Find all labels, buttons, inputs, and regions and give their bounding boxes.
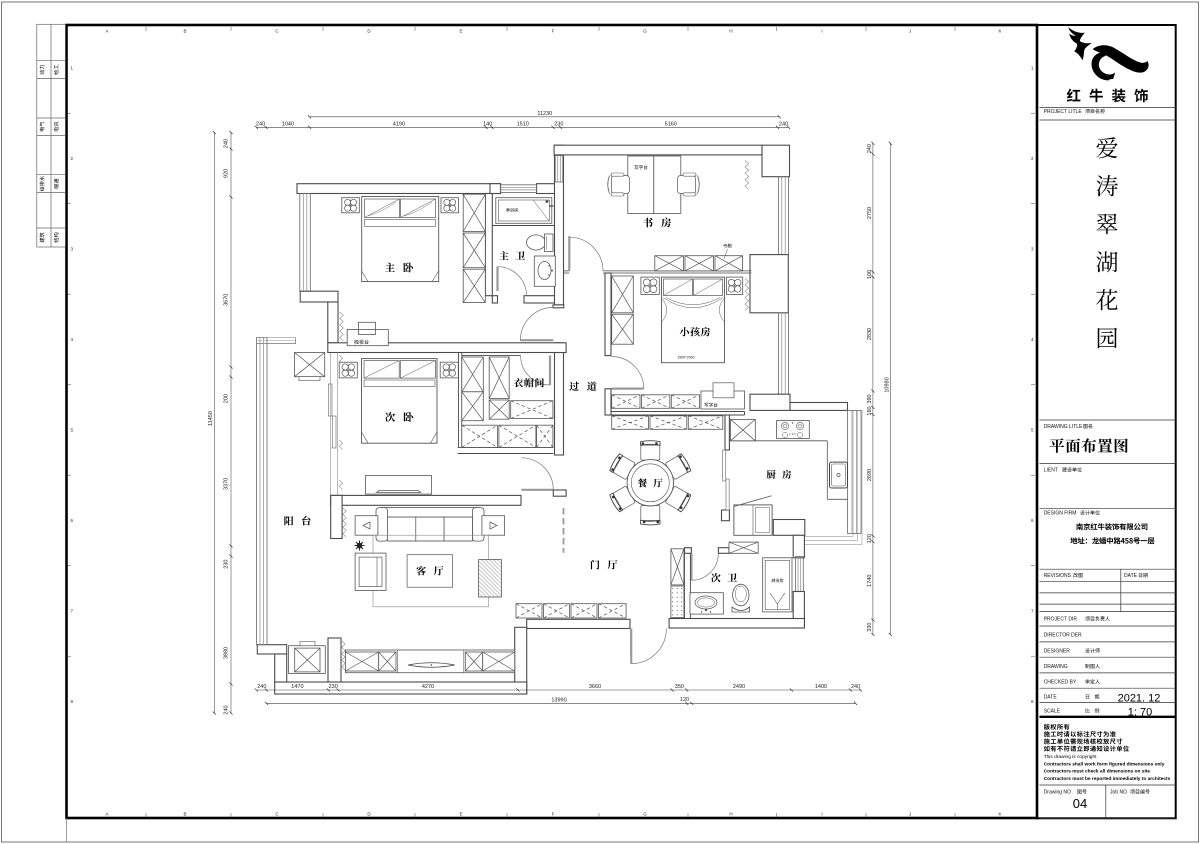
- svg-text:J: J: [909, 29, 911, 34]
- svg-text:5160: 5160: [665, 122, 677, 128]
- svg-text:K: K: [998, 812, 1001, 817]
- svg-text:B: B: [183, 29, 186, 34]
- svg-text:DIRECTOR DER: DIRECTOR DER: [1044, 633, 1082, 639]
- svg-text:I: I: [821, 29, 822, 34]
- svg-text:H: H: [729, 29, 732, 34]
- svg-text:120: 120: [680, 697, 689, 703]
- svg-text:Contractors must be reported i: Contractors must be reported immediately…: [1044, 776, 1171, 782]
- svg-text:E: E: [459, 812, 462, 817]
- svg-text:920: 920: [224, 169, 230, 178]
- svg-text:1510: 1510: [517, 122, 529, 128]
- svg-text:F: F: [552, 29, 555, 34]
- svg-text:DESIGNER: DESIGNER: [1044, 649, 1071, 655]
- svg-text:1740: 1740: [867, 575, 873, 587]
- svg-text:120: 120: [867, 534, 873, 543]
- svg-text:A: A: [105, 29, 108, 34]
- svg-text:330: 330: [867, 623, 873, 632]
- svg-text:DRAWING LITLE: DRAWING LITLE: [1044, 424, 1083, 430]
- svg-text:F: F: [552, 812, 555, 817]
- svg-text:04: 04: [1073, 796, 1087, 811]
- svg-text:Drawing NO: Drawing NO: [1044, 790, 1071, 796]
- svg-text:240: 240: [851, 684, 860, 690]
- svg-text:240: 240: [256, 122, 265, 128]
- svg-text:240: 240: [779, 122, 788, 128]
- svg-text:240: 240: [867, 144, 873, 153]
- svg-text:2830: 2830: [867, 328, 873, 340]
- svg-text:PROJECT DIR: PROJECT DIR: [1044, 617, 1078, 623]
- svg-text:10980: 10980: [885, 377, 891, 392]
- svg-text:1400: 1400: [815, 684, 827, 690]
- svg-text:Contractors shall work form fi: Contractors shall work form figured dime…: [1044, 761, 1165, 767]
- svg-text:REVISIONS: REVISIONS: [1044, 573, 1072, 579]
- svg-text:3370: 3370: [224, 478, 230, 490]
- svg-text:230: 230: [329, 684, 338, 690]
- svg-text:1: 70: 1: 70: [1128, 707, 1152, 719]
- svg-text:11450: 11450: [208, 411, 214, 426]
- svg-text:SCALE: SCALE: [1044, 709, 1061, 715]
- svg-text:230: 230: [554, 122, 563, 128]
- svg-text:K: K: [998, 29, 1001, 34]
- svg-text:1040: 1040: [282, 122, 294, 128]
- svg-text:100: 100: [867, 270, 873, 279]
- svg-text:This drawing is copyright: This drawing is copyright: [1044, 754, 1097, 760]
- svg-text:3670: 3670: [224, 294, 230, 306]
- svg-text:DATE: DATE: [1044, 695, 1058, 701]
- svg-text:DRAWING: DRAWING: [1044, 664, 1068, 670]
- svg-text:13990: 13990: [551, 698, 566, 704]
- svg-text:LIENT: LIENT: [1044, 468, 1058, 474]
- svg-text:230: 230: [224, 560, 230, 569]
- svg-text:200: 200: [224, 394, 230, 403]
- svg-text:PROJECT LITLE: PROJECT LITLE: [1044, 109, 1083, 115]
- svg-text:2750: 2750: [867, 207, 873, 219]
- svg-text:240: 240: [224, 139, 230, 148]
- svg-text:G: G: [643, 29, 647, 34]
- svg-text:E: E: [459, 29, 462, 34]
- svg-text:DESIGN FIRM: DESIGN FIRM: [1044, 511, 1077, 517]
- svg-text:4270: 4270: [422, 684, 434, 690]
- svg-text:140: 140: [483, 122, 492, 128]
- svg-text:240: 240: [224, 705, 230, 714]
- svg-text:Contractors must check all dim: Contractors must check all dimensions on…: [1044, 769, 1151, 775]
- svg-text:3980: 3980: [224, 647, 230, 659]
- svg-text:CHECKED BY: CHECKED BY: [1044, 680, 1077, 686]
- svg-text:390: 390: [867, 394, 873, 403]
- svg-text:1500*2000: 1500*2000: [677, 356, 694, 360]
- svg-text:G: G: [643, 812, 647, 817]
- svg-text:B: B: [183, 812, 186, 817]
- svg-text:1470: 1470: [291, 684, 303, 690]
- svg-text:A: A: [105, 812, 108, 817]
- svg-text:DATE: DATE: [1124, 573, 1138, 579]
- svg-text:2490: 2490: [733, 684, 745, 690]
- svg-text:3660: 3660: [589, 684, 601, 690]
- svg-text:Job NO: Job NO: [1110, 790, 1127, 796]
- svg-text:I: I: [821, 812, 822, 817]
- svg-text:350: 350: [675, 684, 684, 690]
- svg-text:H: H: [729, 812, 732, 817]
- svg-text:J: J: [909, 812, 911, 817]
- svg-text:240: 240: [257, 684, 266, 690]
- svg-text:4190: 4190: [393, 122, 405, 128]
- svg-text:2021. 12: 2021. 12: [1118, 693, 1161, 705]
- svg-text:2690: 2690: [867, 469, 873, 481]
- svg-text:160: 160: [867, 406, 873, 415]
- svg-text:11230: 11230: [537, 111, 552, 117]
